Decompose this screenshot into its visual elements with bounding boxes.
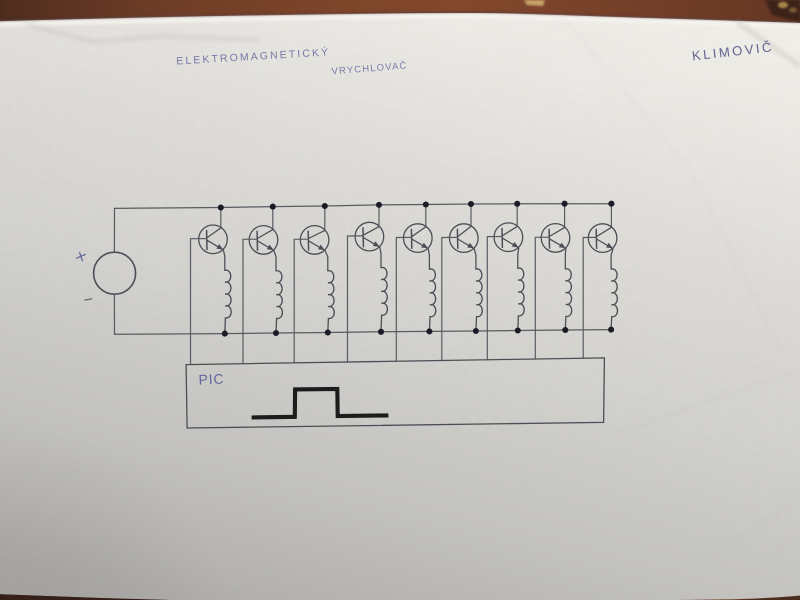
svg-text:PIC: PIC [198,370,224,387]
